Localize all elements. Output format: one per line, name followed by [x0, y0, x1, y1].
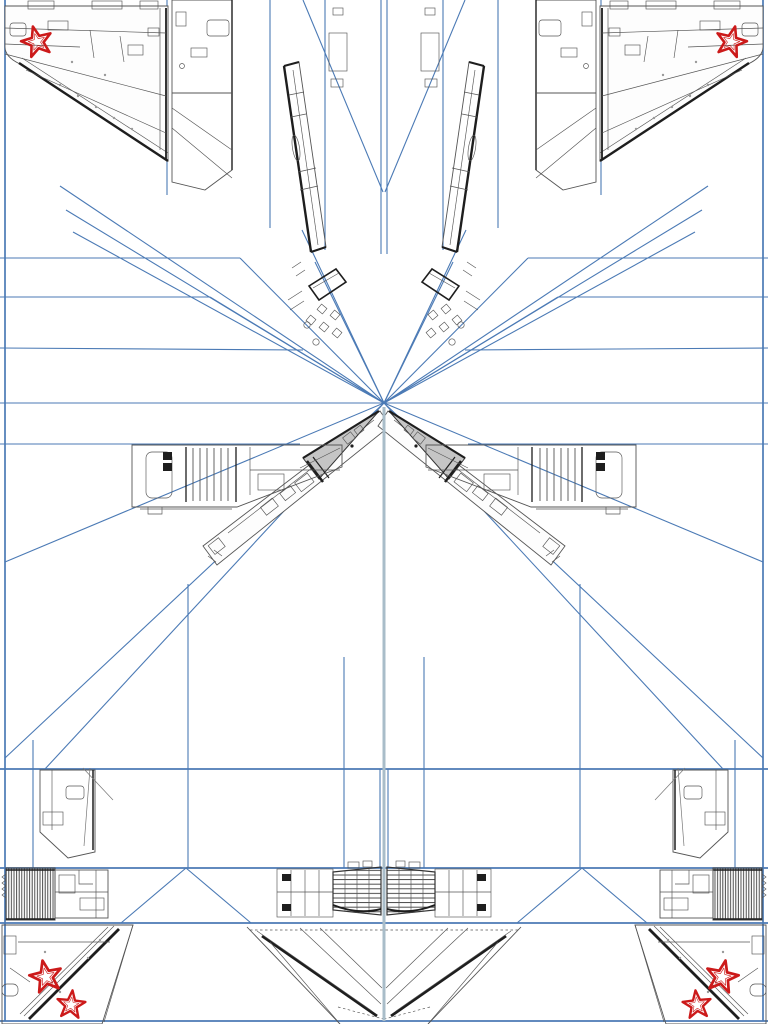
red-star-icon	[56, 989, 87, 1018]
part-tail-fin-left	[284, 62, 326, 252]
red-star-icon	[682, 989, 713, 1018]
papercraft-sheet	[0, 0, 768, 1024]
left-half	[0, 0, 390, 1024]
construction-lines	[0, 0, 384, 1021]
right-half-mirrored	[378, 0, 768, 1024]
part-exhaust-nozzle-left	[277, 861, 381, 917]
part-bottom-corner-left	[2, 768, 133, 1024]
part-wing-skin-upper-left	[5, 0, 232, 190]
part-aft-deck-left	[247, 927, 384, 1024]
part-forward-fuselage-left	[132, 411, 390, 565]
template-drawing	[0, 0, 768, 1024]
part-small-tabs-top-centre	[329, 8, 347, 87]
